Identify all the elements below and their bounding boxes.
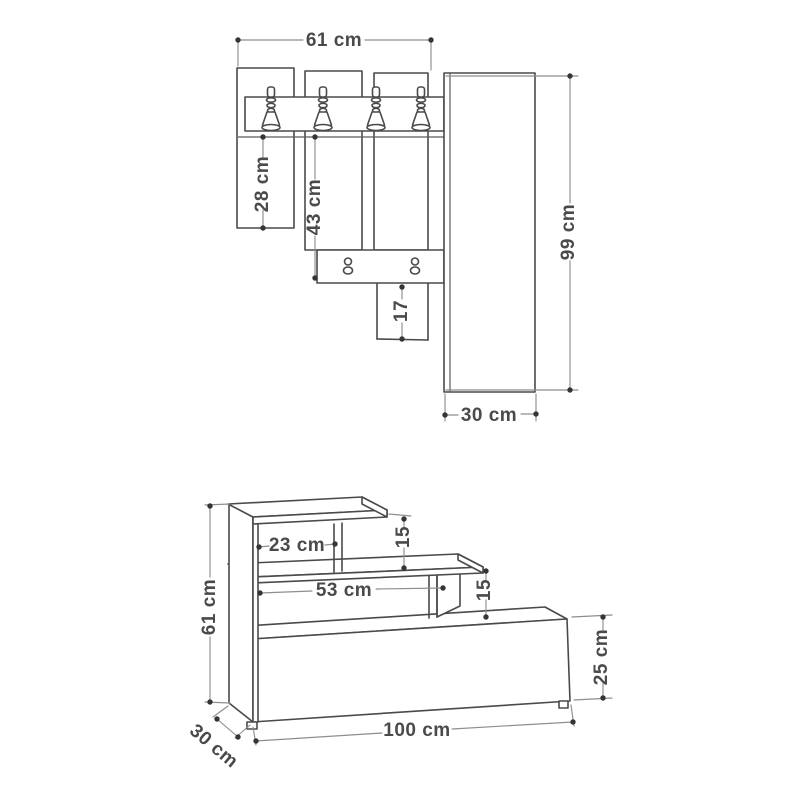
cabinet-right-foot	[559, 701, 568, 708]
bench-view: 61 cm 23 cm 53 cm 15	[185, 497, 612, 773]
dim-wall-total-width: 61 cm	[235, 30, 433, 70]
dim-label-middle-shelf-width: 53 cm	[316, 580, 372, 601]
dim-middle-shelf-width: 53 cm	[257, 580, 445, 601]
dim-label-side-panel-width: 30 cm	[461, 405, 517, 426]
tall-side-panel	[444, 73, 535, 392]
bench-left-foot	[247, 722, 257, 729]
bench-left-side-panel	[229, 504, 258, 729]
dim-label-middle-slat-length: 43 cm	[304, 179, 325, 235]
dim-cabinet-height: 25 cm	[572, 614, 612, 700]
dim-label-middle-gap-height: 15	[474, 579, 495, 601]
dim-top-shelf-width: 23 cm	[256, 535, 337, 556]
dim-label-side-panel-height: 99 cm	[558, 204, 579, 260]
dim-bench-depth: 30 cm	[185, 706, 250, 773]
dim-side-panel-width: 30 cm	[442, 394, 538, 426]
drawing-page: 61 cm 28 cm 43 cm 17	[0, 0, 800, 800]
dim-label-top-shelf-width: 23 cm	[269, 535, 325, 556]
dim-label-bottom-slat-length: 17	[391, 300, 412, 322]
dim-label-bench-width: 100 cm	[383, 720, 450, 741]
dim-label-wall-total-width: 61 cm	[306, 30, 362, 51]
furniture-dimension-diagram: 61 cm 28 cm 43 cm 17	[0, 0, 800, 800]
dim-bench-height: 61 cm	[199, 503, 230, 704]
wall-unit-view: 61 cm 28 cm 43 cm 17	[235, 30, 579, 426]
dim-label-cabinet-height: 25 cm	[591, 629, 612, 685]
dim-bottom-slat-length: 17	[391, 284, 412, 341]
dim-label-bench-depth: 30 cm	[185, 720, 242, 772]
dim-label-top-gap-height: 15	[393, 526, 414, 548]
dim-label-bench-height: 61 cm	[199, 579, 220, 635]
dim-label-left-slat-length: 28 cm	[252, 156, 273, 212]
accessory-shelf	[317, 250, 444, 283]
